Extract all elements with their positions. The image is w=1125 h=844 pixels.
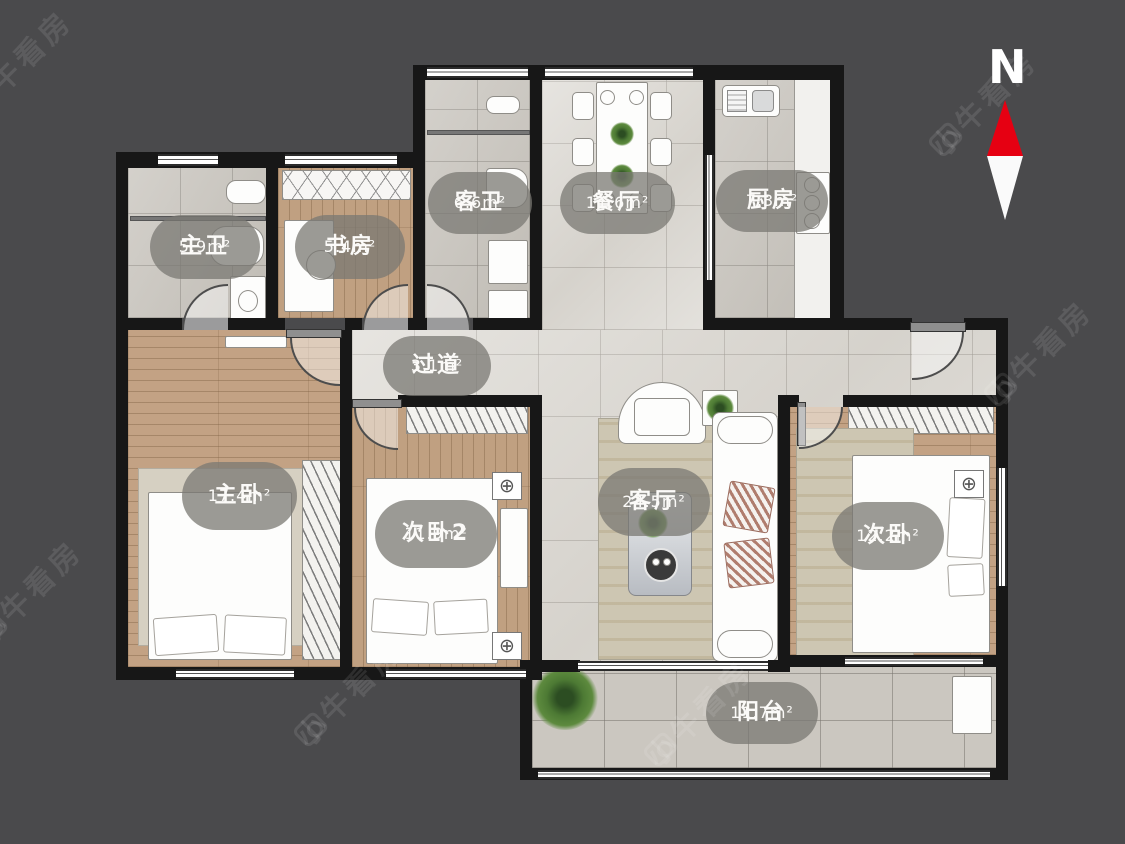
window [427,67,528,78]
ac-unit-symbol: ⊕ [492,632,522,660]
pillow [946,497,985,559]
room-area: 17.4m² [208,486,272,505]
sink-drainer [727,90,747,112]
room-area: 3.1m² [411,356,463,375]
room-area: 5.4m² [324,237,376,256]
door-panel [910,322,966,332]
plate [629,90,644,105]
wall-segment [408,318,427,330]
window [176,669,294,679]
window [845,657,983,666]
toilet [226,180,266,204]
wall-segment [398,395,530,407]
sink-basin [238,290,258,312]
ac-icon: ⊕ [499,637,515,656]
wall-segment [703,318,830,330]
armchair-cushion [634,398,690,436]
watermark-text: 小牛看房 [0,0,81,125]
sofa-armrest [717,416,773,444]
room-area: 11.9m² [404,524,468,543]
bathroom-sink [488,240,528,284]
sofa-cushion [722,480,775,533]
pillow [433,599,489,636]
wall-segment [530,395,542,667]
wall-segment [473,318,542,330]
wall-segment [266,152,278,330]
table-plant [610,122,634,146]
wall-segment [768,660,790,672]
wall-segment [413,65,425,330]
window [158,154,218,166]
wall-segment [778,395,790,667]
wall-segment [345,318,362,330]
room-label-living: 客厅 24.5m² [598,468,710,536]
ac-unit-symbol: ⊕ [492,472,522,500]
window [705,155,714,280]
compass-needle-south-icon [987,156,1023,220]
cup [652,558,660,566]
room-area: 7.3m² [746,191,798,210]
wall-segment [530,660,580,672]
balcony-basin [952,676,992,734]
watermark-text: 小牛看房 [920,39,1046,165]
dining-chair [572,92,594,120]
door-panel [286,329,342,338]
door-panel [352,399,402,408]
dining-chair [650,138,672,166]
wall-segment [228,318,285,330]
room-label-hallway: 过道 3.1m² [383,336,491,396]
ac-unit-symbol: ⊕ [954,470,984,498]
room-area: 6.6m² [454,193,506,212]
wall-segment [530,65,542,330]
study-wardrobe [282,170,411,200]
tray [644,548,678,582]
room-label-master-bedroom: 主卧 17.4m² [182,462,297,530]
faucet [486,96,520,114]
master-wardrobe [302,460,342,660]
room-area: 11.6m² [586,193,650,212]
room-area: 11.7m² [730,703,794,722]
dining-chair [650,92,672,120]
pillow [153,614,219,656]
ac-icon: ⊕ [499,477,515,496]
room-area: 5.9m² [179,237,231,256]
nightstand [500,508,528,588]
bench-shelf [225,336,287,348]
watermark-text: 小牛看房 [0,529,91,655]
wall-segment [116,152,128,680]
room-label-bedroom-2: 次卧2 11.9m² [375,500,497,568]
plate [600,90,615,105]
sofa-cushion [723,537,774,588]
window [545,67,693,78]
room-label-master-bath: 主卫 5.9m² [150,215,260,279]
ac-icon: ⊕ [961,475,977,494]
window [997,468,1007,586]
wall-segment [340,330,352,667]
pillow [223,614,287,655]
room-area: 12.2m² [856,526,920,545]
sofa [712,412,778,662]
room-label-guest-bath: 客卫 6.6m² [428,172,532,234]
window [386,669,526,679]
room-label-kitchen: 厨房 7.3m² [716,170,828,232]
shower-partition [427,130,530,135]
wall-segment [830,65,844,330]
floor-plan-canvas: ⊕ ⊕ ⊕ [0,0,1125,844]
room-label-study: 书房 5.4m² [295,215,405,279]
room-label-dining: 餐厅 11.6m² [560,172,675,234]
wall-segment [116,318,182,330]
room-label-bedroom-3: 次卧 12.2m² [832,502,944,570]
room-area: 24.5m² [622,492,686,511]
dining-chair [572,138,594,166]
window [285,154,397,166]
window [538,770,990,779]
wall-segment [830,318,912,330]
sink-bowl [752,90,774,112]
wall-segment [843,395,996,407]
pillow [947,563,985,597]
cup [663,558,671,566]
